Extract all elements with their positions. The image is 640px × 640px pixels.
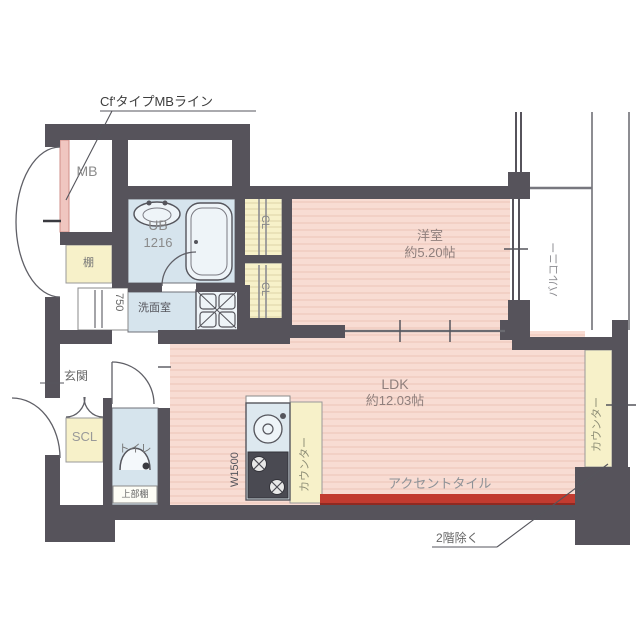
balcony-label: バルコニー bbox=[549, 242, 560, 297]
accent-tile-label: アクセントタイル bbox=[388, 477, 491, 490]
scl-label: SCL bbox=[66, 430, 103, 443]
mb-label: MB bbox=[70, 164, 104, 178]
kitchen-sink bbox=[254, 415, 282, 443]
mb-door-upper bbox=[16, 147, 60, 222]
entrance-door bbox=[12, 398, 60, 458]
right-counter-label: カウンター bbox=[592, 397, 603, 452]
scl-door-left bbox=[66, 397, 85, 417]
kitchen-width-label: W1500 bbox=[230, 452, 241, 487]
washroom-label: 洗面室 bbox=[138, 303, 171, 314]
toilet-shelf-label: 上部棚 bbox=[113, 490, 157, 499]
floor-plan: Cf'タイプMBライン MB UB 1216 棚 750 洗面室 CL CL 洋… bbox=[0, 0, 640, 640]
shelf-label: 棚 bbox=[83, 258, 94, 269]
closet-lower-label: CL bbox=[259, 282, 270, 296]
bottom-note-label: 2階除く bbox=[436, 532, 479, 544]
top-note-label: Cf'タイプMBライン bbox=[100, 95, 213, 108]
bedroom-size-label: 約5.20帖 bbox=[380, 246, 480, 259]
toilet-door bbox=[112, 362, 154, 404]
bedroom-floor bbox=[292, 199, 510, 331]
ub-size-label: 1216 bbox=[134, 236, 182, 249]
ldk-label: LDK bbox=[345, 377, 445, 391]
bathtub bbox=[186, 203, 232, 280]
scl-door-right bbox=[84, 397, 103, 417]
washing-machine-pan bbox=[196, 290, 238, 330]
closet-upper-label: CL bbox=[259, 215, 270, 229]
kitchen-unit bbox=[246, 396, 290, 500]
floor-plan-drawing bbox=[0, 0, 640, 640]
toilet-label: トイレ bbox=[112, 444, 158, 455]
balcony-rails bbox=[516, 112, 629, 330]
kitchen-counter-label: カウンター bbox=[300, 437, 311, 492]
mb-line-strip bbox=[60, 140, 69, 232]
closet-width-label: 750 bbox=[113, 293, 124, 311]
ldk-size-label: 約12.03帖 bbox=[345, 394, 445, 407]
entrance-label: 玄関 bbox=[64, 370, 88, 382]
ub-label: UB bbox=[136, 218, 180, 232]
mb-door-lower bbox=[16, 222, 60, 297]
bedroom-label: 洋室 bbox=[380, 229, 480, 242]
